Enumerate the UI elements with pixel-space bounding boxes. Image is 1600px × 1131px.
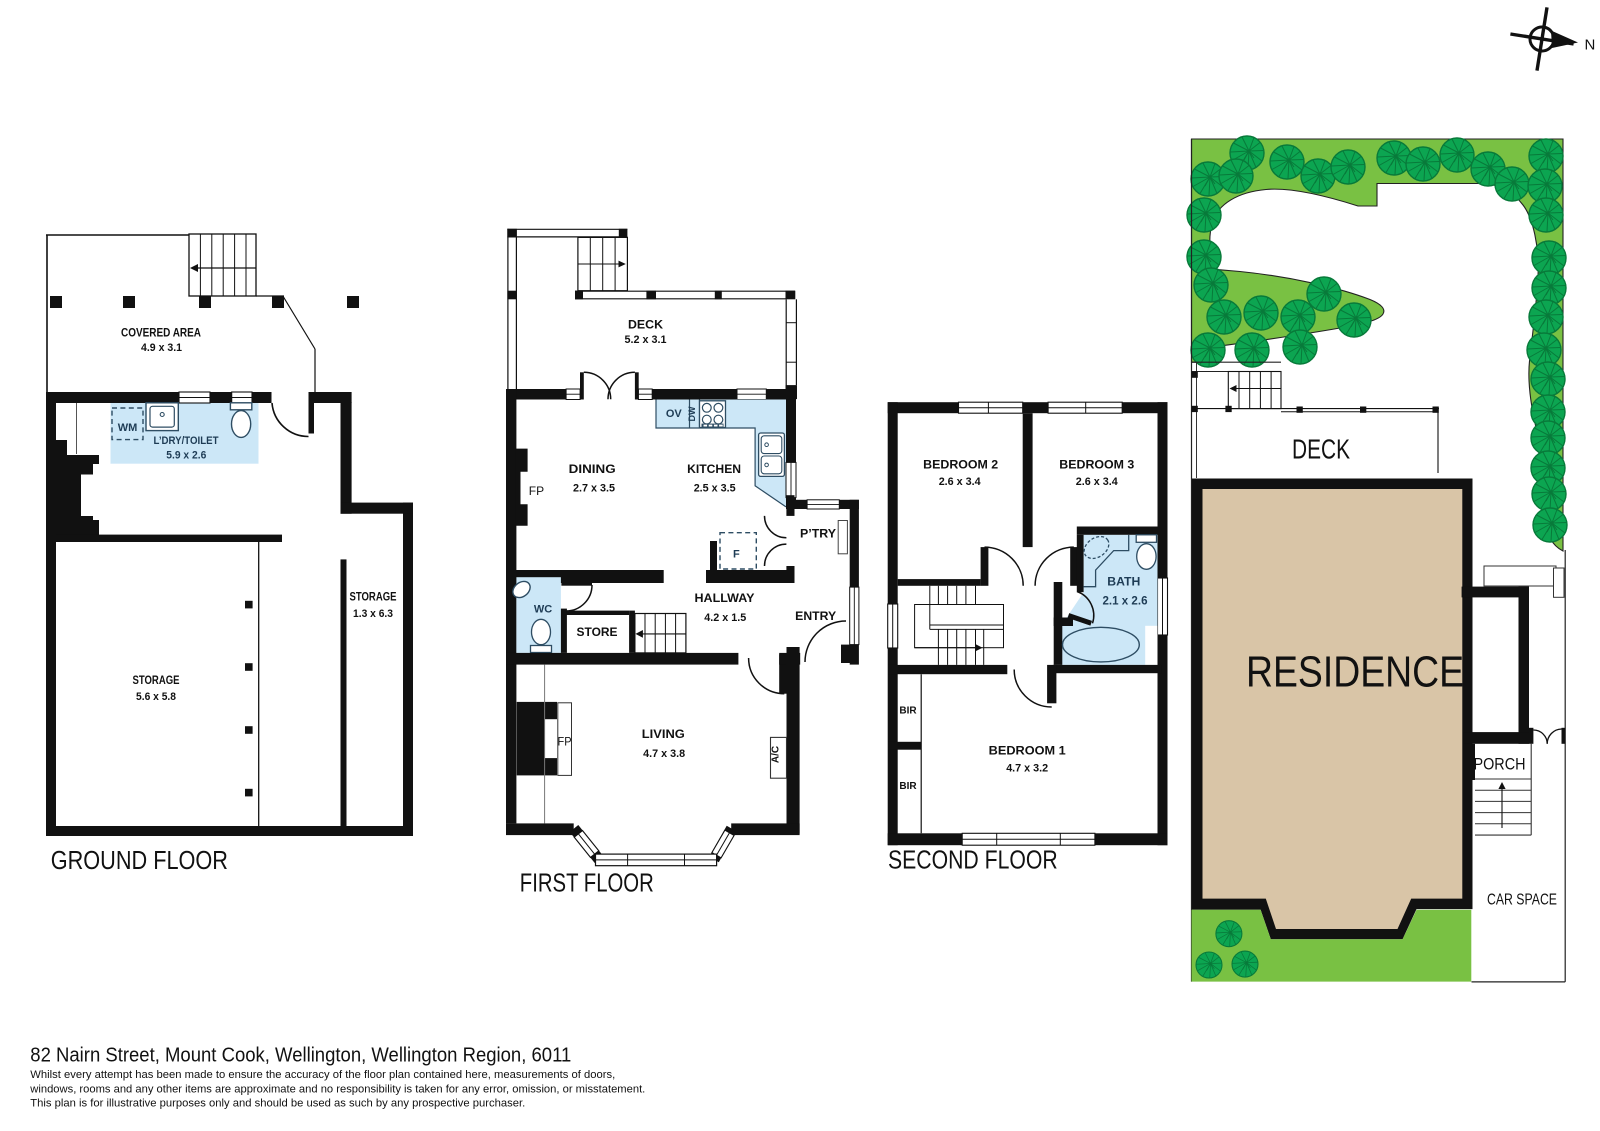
svg-text:COVERED AREA: COVERED AREA xyxy=(121,328,201,340)
svg-text:GROUND FLOOR: GROUND FLOOR xyxy=(51,847,228,875)
svg-text:WM: WM xyxy=(118,422,138,434)
svg-text:HALLWAY: HALLWAY xyxy=(695,593,755,605)
svg-text:5.2 x 3.1: 5.2 x 3.1 xyxy=(625,334,667,346)
svg-text:BATH: BATH xyxy=(1107,577,1140,589)
svg-text:Whilst every attempt has been: Whilst every attempt has been made to en… xyxy=(30,1069,615,1081)
svg-text:A/C: A/C xyxy=(771,746,782,763)
svg-text:STORAGE: STORAGE xyxy=(350,592,397,604)
svg-text:RESIDENCE: RESIDENCE xyxy=(1246,648,1464,697)
svg-text:CAR SPACE: CAR SPACE xyxy=(1487,891,1557,908)
svg-text:windows, rooms and any other i: windows, rooms and any other items are a… xyxy=(29,1083,645,1095)
svg-text:BEDROOM 1: BEDROOM 1 xyxy=(989,745,1067,757)
svg-text:FP: FP xyxy=(558,735,572,749)
svg-text:5.9 x 2.6: 5.9 x 2.6 xyxy=(166,449,206,461)
svg-text:SECOND FLOOR: SECOND FLOOR xyxy=(888,847,1058,875)
svg-text:FIRST FLOOR: FIRST FLOOR xyxy=(520,870,654,898)
svg-text:KITCHEN: KITCHEN xyxy=(687,464,741,476)
svg-text:2.1 x 2.6: 2.1 x 2.6 xyxy=(1103,596,1148,608)
svg-text:LIVING: LIVING xyxy=(642,729,685,741)
svg-text:4.2 x 1.5: 4.2 x 1.5 xyxy=(704,612,746,624)
svg-text:4.9 x 3.1: 4.9 x 3.1 xyxy=(141,342,182,354)
svg-text:4.7 x 3.8: 4.7 x 3.8 xyxy=(643,748,685,760)
svg-text:BIR: BIR xyxy=(899,705,917,716)
svg-text:4.7 x 3.2: 4.7 x 3.2 xyxy=(1006,763,1048,775)
svg-text:2.7 x 3.5: 2.7 x 3.5 xyxy=(573,483,615,495)
svg-text:DW: DW xyxy=(687,406,697,421)
svg-text:2.5 x 3.5: 2.5 x 3.5 xyxy=(694,483,736,495)
svg-text:L’DRY/TOILET: L’DRY/TOILET xyxy=(154,435,219,447)
svg-text:BEDROOM 2: BEDROOM 2 xyxy=(923,459,998,471)
svg-text:BEDROOM 3: BEDROOM 3 xyxy=(1059,459,1134,471)
svg-text:STORAGE: STORAGE xyxy=(133,675,180,687)
svg-text:2.6 x 3.4: 2.6 x 3.4 xyxy=(939,476,982,488)
svg-text:STORE: STORE xyxy=(577,627,618,639)
svg-text:2.6 x 3.4: 2.6 x 3.4 xyxy=(1076,476,1119,488)
svg-text:5.6 x 5.8: 5.6 x 5.8 xyxy=(136,691,176,703)
svg-text:WC: WC xyxy=(534,604,552,616)
svg-text:DECK: DECK xyxy=(1292,433,1350,464)
svg-text:This plan is for illustrative: This plan is for illustrative purposes o… xyxy=(30,1098,525,1110)
svg-text:FP: FP xyxy=(529,484,544,498)
svg-text:OV: OV xyxy=(666,408,683,420)
svg-text:DINING: DINING xyxy=(569,464,616,476)
svg-text:DECK: DECK xyxy=(628,320,664,332)
svg-text:1.3 x 6.3: 1.3 x 6.3 xyxy=(353,608,393,620)
svg-text:N: N xyxy=(1585,37,1596,54)
svg-text:BIR: BIR xyxy=(899,781,917,792)
svg-text:82 Nairn Street, Mount Cook, W: 82 Nairn Street, Mount Cook, Wellington,… xyxy=(30,1045,571,1067)
svg-text:PORCH: PORCH xyxy=(1474,754,1526,773)
svg-text:P’TRY: P’TRY xyxy=(800,529,836,541)
svg-text:ENTRY: ENTRY xyxy=(795,611,836,623)
svg-text:F: F xyxy=(733,549,740,561)
